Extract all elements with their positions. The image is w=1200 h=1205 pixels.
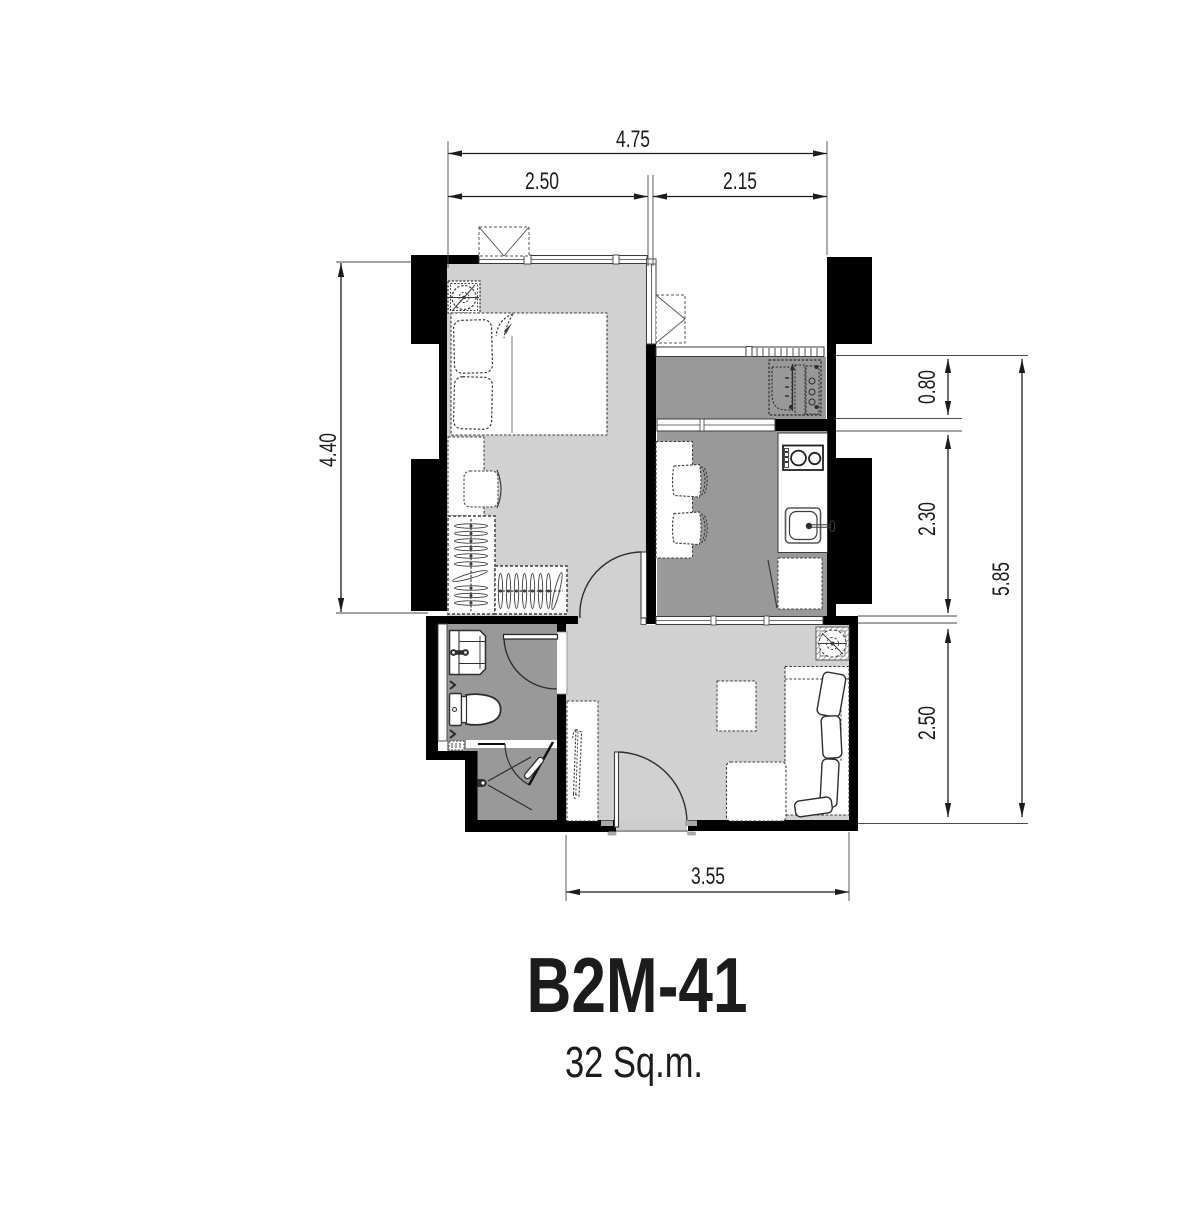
svg-text:32 Sq.m.: 32 Sq.m.	[565, 1038, 703, 1087]
svg-text:2.50: 2.50	[525, 168, 559, 195]
svg-text:B2M-41: B2M-41	[527, 941, 748, 1029]
svg-text:2.30: 2.30	[914, 502, 941, 536]
svg-text:3.55: 3.55	[691, 863, 725, 890]
svg-text:2.15: 2.15	[723, 168, 757, 195]
svg-text:4.75: 4.75	[616, 126, 650, 153]
svg-text:2.50: 2.50	[914, 706, 941, 740]
svg-text:5.85: 5.85	[988, 562, 1015, 596]
svg-text:4.40: 4.40	[315, 433, 342, 467]
svg-text:0.80: 0.80	[914, 370, 941, 404]
